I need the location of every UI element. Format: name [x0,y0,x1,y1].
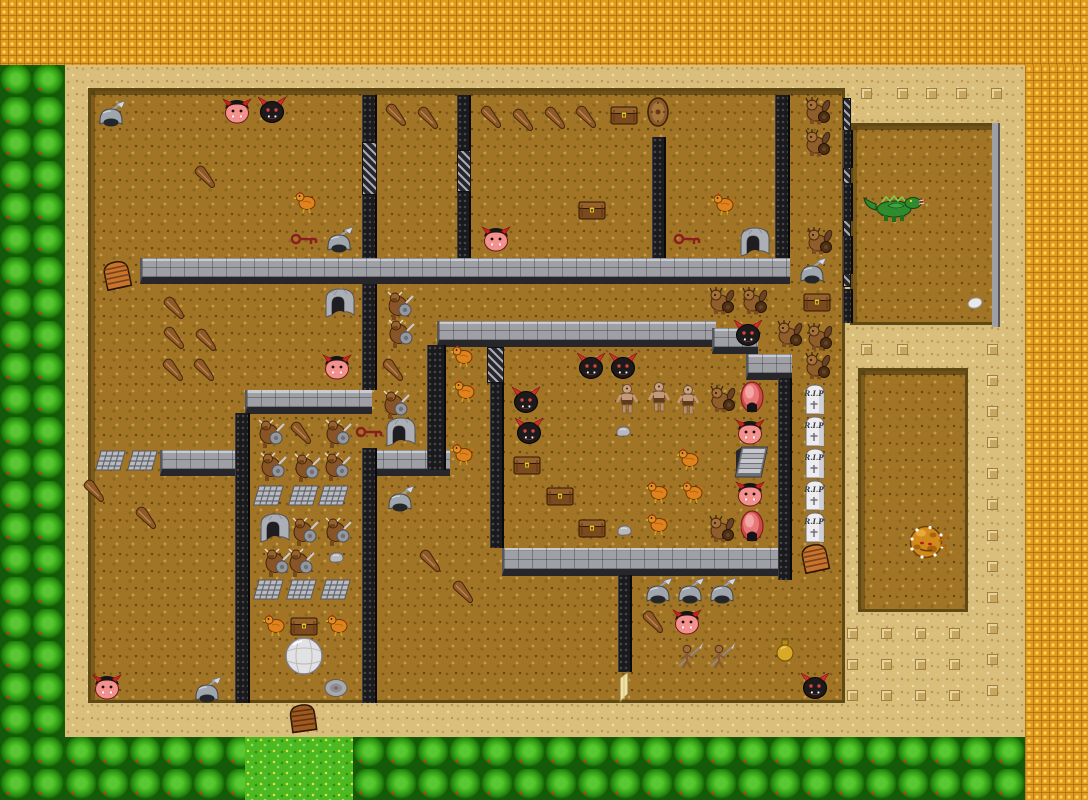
sand-tile-mark [987,375,998,386]
sand-tile-mark [915,628,926,639]
troll[interactable] [706,284,738,316]
club[interactable] [449,576,481,608]
troll-icon [739,284,771,316]
club[interactable] [160,322,192,354]
boulder-sphere-icon [283,635,325,677]
red-demon-face[interactable] [91,671,123,703]
stone-arch-icon [322,285,358,319]
floor-grate-icon [94,448,130,474]
minotaur-icon [284,546,316,578]
stone-wall-vertical [652,137,666,258]
troll-icon [802,126,834,158]
portal-icon [737,378,767,416]
red-demon-face[interactable] [480,223,512,255]
club-icon [192,324,224,356]
chicken[interactable] [642,475,674,507]
chest[interactable] [801,286,833,314]
chicken-icon [677,475,709,507]
club-icon [416,545,448,577]
portal[interactable] [737,507,767,545]
sand-tile-mark [987,437,998,448]
chest[interactable] [511,449,543,477]
sand-tile-mark [987,623,998,634]
wall-grate [487,347,504,383]
stone-wall-vertical [778,378,792,580]
club[interactable] [639,606,671,638]
stairs[interactable] [732,445,770,479]
troll-icon [706,512,738,544]
club[interactable] [132,502,164,534]
sand-tile-mark [881,628,892,639]
floor-grate[interactable] [285,577,321,603]
black-demon-face-icon [256,94,288,126]
stone-egg[interactable] [967,297,983,309]
club[interactable] [477,101,509,133]
sand-tile-mark [949,628,960,639]
red-demon-face-icon [671,606,703,638]
floor-grate-icon [252,483,288,509]
svg-text:R.I.P: R.I.P [803,485,824,494]
chicken-icon [642,507,674,539]
bush-border [65,737,245,800]
grass-path[interactable] [245,737,353,800]
game-map: R.I.PR.I.PR.I.PR.I.PR.I.P [0,0,1088,800]
helmet-item[interactable] [95,100,127,130]
door-arch-orange[interactable] [795,541,835,575]
club-icon [80,475,112,507]
dragon-icon [862,186,928,228]
floor-grate-icon [285,577,321,603]
key-icon [289,230,319,248]
flask[interactable] [774,637,796,663]
key[interactable] [672,230,702,248]
sand-tile-mark [897,344,908,355]
cyclops[interactable] [643,380,675,414]
sand-tile-mark [949,659,960,670]
troll-icon [804,224,836,256]
stone-wall-vertical [490,383,504,548]
stone-disc-icon [323,678,349,698]
club[interactable] [159,354,191,386]
troll[interactable] [706,512,738,544]
key-icon [672,230,702,248]
sand-tile-mark [987,530,998,541]
cyclops-icon [672,383,704,417]
troll[interactable] [804,320,836,352]
club-icon [191,161,223,193]
black-demon-face[interactable] [607,350,639,382]
club-icon [287,417,319,449]
red-demon-face[interactable] [734,478,766,510]
helmet-item[interactable] [323,226,355,256]
cyclops-icon [611,382,643,416]
svg-text:R.I.P: R.I.P [803,453,824,462]
stone-wall-vertical [457,192,471,258]
stone-wall-horizontal [160,450,237,476]
stone-small-icon [614,424,632,438]
club[interactable] [414,102,446,134]
floor-grate[interactable] [94,448,130,474]
sand-tile-mark [881,659,892,670]
tombstone-icon: R.I.P [801,445,829,481]
troll[interactable] [802,126,834,158]
minotaur[interactable] [384,317,416,349]
club[interactable] [190,354,222,386]
stone-wall-vertical [362,195,377,258]
minotaur[interactable] [254,417,286,449]
helmet-item[interactable] [384,485,416,515]
sand-tile-mark [987,592,998,603]
troll[interactable] [707,382,739,414]
door-arch-orange[interactable] [97,258,137,292]
chicken[interactable] [290,185,322,217]
sand-tile-mark [847,690,858,701]
chest-icon [544,480,576,508]
sand-tile-mark [987,499,998,510]
tombstone[interactable]: R.I.P [801,509,829,545]
svg-text:R.I.P: R.I.P [803,517,824,526]
troll-icon [802,94,834,126]
chicken[interactable] [677,475,709,507]
chicken[interactable] [642,507,674,539]
void-border [0,0,1088,65]
key[interactable] [354,423,384,441]
bush-border [353,737,1025,800]
stone-wall-horizontal [746,354,792,380]
sand-tile-mark [926,88,937,99]
svg-text:R.I.P: R.I.P [803,389,824,398]
stone-wall-horizontal [502,548,790,576]
stone-wall-horizontal [140,258,790,284]
troll[interactable] [802,94,834,126]
chest-icon [288,610,320,638]
door-open-yellow-icon [616,669,632,705]
flask-icon [774,637,796,663]
club-icon [160,322,192,354]
chicken-icon [642,475,674,507]
stone-wall-vertical [775,95,790,258]
helmet-item-icon [674,577,706,607]
club[interactable] [572,101,604,133]
stone-egg-icon [967,297,983,309]
chest[interactable] [576,512,608,540]
helmet-item-icon [95,100,127,130]
door-open-yellow[interactable] [616,669,632,705]
troll[interactable] [774,317,806,349]
club-icon [379,354,411,386]
troll[interactable] [802,349,834,381]
chest[interactable] [576,194,608,222]
stone-arch-icon [737,224,773,258]
chest-icon [576,194,608,222]
dragon-room-wall-thin [992,123,1000,327]
helmet-item-icon [191,676,223,706]
helmet-item-icon [323,226,355,256]
floor-grate-icon [319,577,355,603]
stone-arch[interactable] [737,224,773,258]
floor-grate-icon [317,483,353,509]
sand-tile-mark [949,690,960,701]
sand-tile-mark [956,88,967,99]
red-demon-face-icon [91,671,123,703]
tombstone[interactable]: R.I.P [801,381,829,417]
minotaur-icon [288,515,320,547]
door-arch-orange-icon [795,541,835,575]
sand-tile-mark [897,88,908,99]
cyclops[interactable] [672,383,704,417]
black-demon-face[interactable] [732,317,764,349]
tombstone[interactable]: R.I.P [801,477,829,513]
chest-icon [801,286,833,314]
club-icon [414,102,446,134]
club[interactable] [382,99,414,131]
club[interactable] [287,417,319,449]
black-demon-face[interactable] [799,670,831,702]
spearman-icon [706,639,738,671]
stone-wall-vertical [457,95,471,150]
floor-grate[interactable] [252,483,288,509]
sand-tile-mark [915,659,926,670]
stone-small-icon [615,523,633,537]
minotaur-icon [254,417,286,449]
black-demon-face[interactable] [510,384,542,416]
club[interactable] [191,161,223,193]
club-icon [541,102,573,134]
dragon-room-wall [843,183,853,221]
stone-wall-vertical [618,575,632,672]
key[interactable] [289,230,319,248]
red-demon-face-icon [734,478,766,510]
chicken[interactable] [447,339,479,371]
club-icon [190,354,222,386]
troll-icon [802,349,834,381]
wooden-shield-icon [645,96,671,128]
helmet-item[interactable] [796,257,828,287]
minotaur[interactable] [321,515,353,547]
stone-wall-vertical [362,95,377,142]
blob-monster-icon [905,521,947,563]
stone-disc[interactable] [323,678,349,698]
void-border [1025,65,1088,800]
wooden-shield[interactable] [645,96,671,128]
stone-arch[interactable] [322,285,358,319]
club-icon [132,502,164,534]
chicken-icon [447,339,479,371]
club-icon [477,101,509,133]
black-demon-face-icon [607,350,639,382]
helmet-item[interactable] [674,577,706,607]
door-arch-brown[interactable] [283,701,323,735]
minotaur[interactable] [290,451,322,483]
minotaur[interactable] [284,546,316,578]
dragon-room-wall [843,289,853,323]
club[interactable] [509,104,541,136]
red-demon-face-icon [221,95,253,127]
club[interactable] [192,324,224,356]
chicken-icon [449,374,481,406]
stone-arch-icon [383,414,419,448]
tombstone-icon: R.I.P [801,509,829,545]
tombstone-icon: R.I.P [801,413,829,449]
chicken[interactable] [322,608,354,640]
troll[interactable] [739,284,771,316]
black-demon-face-icon [575,350,607,382]
sand-tile-mark [991,88,1002,99]
stone-small[interactable] [614,424,632,438]
floor-grate[interactable] [319,577,355,603]
black-demon-face-icon [799,670,831,702]
stone-wall-horizontal [245,390,372,414]
minotaur-icon [320,450,352,482]
bush-border [0,65,65,800]
tombstone-icon: R.I.P [801,381,829,417]
stone-wall-vertical [362,284,377,390]
black-demon-face-icon [513,415,545,447]
red-demon-face-icon [321,351,353,383]
chest-icon [511,449,543,477]
black-demon-face[interactable] [575,350,607,382]
red-demon-face[interactable] [671,606,703,638]
wall-grate [457,150,471,192]
dirt-floor[interactable] [858,368,968,612]
black-demon-face-icon [510,384,542,416]
minotaur[interactable] [256,450,288,482]
blob-monster[interactable] [905,521,947,563]
troll-icon [706,284,738,316]
chicken[interactable] [447,437,479,469]
cyclops[interactable] [611,382,643,416]
minotaur-icon [321,515,353,547]
helmet-item-icon [796,257,828,287]
club-icon [160,292,192,324]
stone-wall-vertical [362,448,377,703]
spearman[interactable] [706,639,738,671]
sand-tile-mark [987,344,998,355]
stone-arch[interactable] [383,414,419,448]
chicken-icon [322,608,354,640]
club[interactable] [379,354,411,386]
chicken[interactable] [708,187,740,219]
helmet-item-icon [642,577,674,607]
sand-tile-mark [987,561,998,572]
chicken-icon [290,185,322,217]
chest[interactable] [544,480,576,508]
chest[interactable] [608,99,640,127]
cyclops-icon [643,380,675,414]
red-demon-face-icon [480,223,512,255]
chest[interactable] [288,610,320,638]
wall-grate [362,142,377,195]
club[interactable] [541,102,573,134]
floor-grate-icon [252,577,288,603]
floor-grate[interactable] [252,577,288,603]
floor-grate[interactable] [317,483,353,509]
helmet-item-icon [706,577,738,607]
stone-wall-vertical [427,345,446,470]
minotaur[interactable] [321,417,353,449]
key-icon [354,423,384,441]
chicken[interactable] [673,442,705,474]
door-arch-orange-icon [97,258,137,292]
helmet-item[interactable] [191,676,223,706]
minotaur-icon [256,450,288,482]
sand-tile-mark [987,685,998,696]
floor-grate-icon [126,448,162,474]
club-icon [159,354,191,386]
stairs-icon [732,445,770,479]
chicken-icon [447,437,479,469]
chicken[interactable] [449,374,481,406]
red-demon-face-icon [734,416,766,448]
spearman-icon [674,639,706,671]
minotaur-icon [321,417,353,449]
black-demon-face-icon [732,317,764,349]
minotaur[interactable] [288,515,320,547]
red-demon-face[interactable] [221,95,253,127]
minotaur[interactable] [320,450,352,482]
club-icon [639,606,671,638]
tombstone[interactable]: R.I.P [801,445,829,481]
troll-icon [804,320,836,352]
club-icon [449,576,481,608]
chicken-icon [708,187,740,219]
sand-tile-mark [861,344,872,355]
helmet-item[interactable] [642,577,674,607]
floor-grate[interactable] [126,448,162,474]
tombstone[interactable]: R.I.P [801,413,829,449]
black-demon-face[interactable] [513,415,545,447]
stone-wall-vertical [235,413,250,703]
stone-small[interactable] [327,550,345,564]
red-demon-face[interactable] [321,351,353,383]
portal[interactable] [737,378,767,416]
sand-tile-mark [915,690,926,701]
tombstone-icon: R.I.P [801,477,829,513]
sand-tile-mark [847,659,858,670]
stone-small-icon [327,550,345,564]
dragon-room-wall [843,236,853,274]
chest-icon [576,512,608,540]
troll-icon [774,317,806,349]
sand-tile-mark [987,406,998,417]
svg-text:R.I.P: R.I.P [803,421,824,430]
sand-tile-mark [861,88,872,99]
sand-tile-mark [987,468,998,479]
minotaur-icon [290,451,322,483]
troll-icon [707,382,739,414]
club-icon [572,101,604,133]
chest-icon [608,99,640,127]
red-demon-face[interactable] [734,416,766,448]
stone-small[interactable] [615,523,633,537]
club[interactable] [80,475,112,507]
sand-tile-mark [881,690,892,701]
door-arch-brown-icon [283,701,323,735]
club[interactable] [160,292,192,324]
portal-icon [737,507,767,545]
minotaur-icon [384,317,416,349]
troll[interactable] [804,224,836,256]
sand-tile-mark [847,628,858,639]
boulder-sphere[interactable] [283,635,325,677]
club[interactable] [416,545,448,577]
club-icon [382,99,414,131]
spearman[interactable] [674,639,706,671]
sand-tile-mark [987,654,998,665]
helmet-item[interactable] [706,577,738,607]
black-demon-face[interactable] [256,94,288,126]
dragon[interactable] [862,186,928,228]
